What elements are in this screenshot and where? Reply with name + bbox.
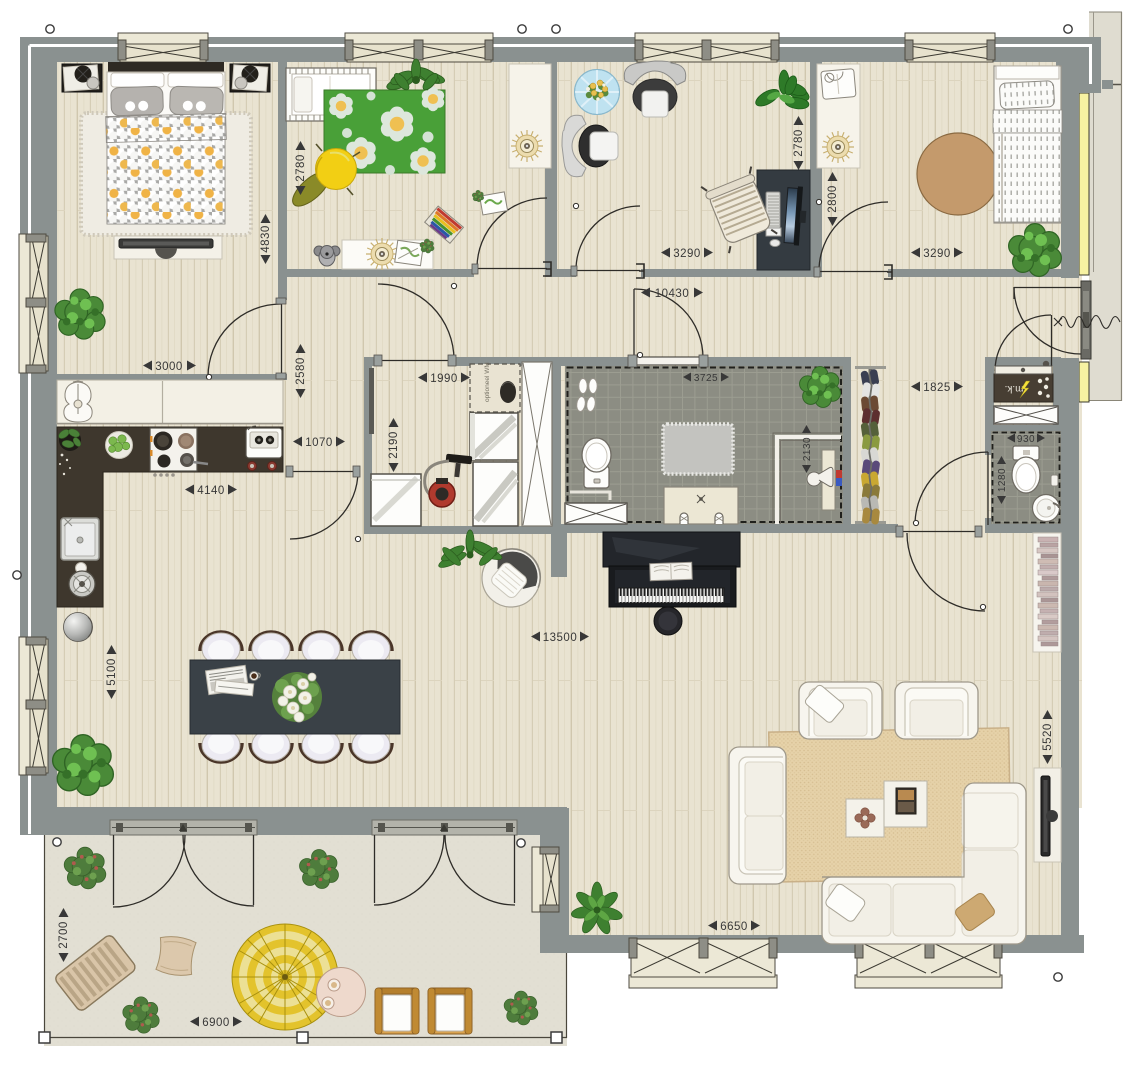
svg-text:m.k.: m.k. — [1005, 383, 1024, 394]
svg-text:2780: 2780 — [793, 129, 805, 157]
svg-text:10430: 10430 — [655, 288, 689, 300]
svg-text:1070: 1070 — [305, 437, 333, 449]
svg-text:2700: 2700 — [58, 921, 70, 949]
svg-text:5520: 5520 — [1042, 723, 1054, 751]
svg-text:2800: 2800 — [827, 185, 839, 213]
svg-text:5100: 5100 — [106, 658, 118, 686]
svg-text:2580: 2580 — [295, 357, 307, 385]
svg-text:4140: 4140 — [197, 485, 225, 497]
svg-text:3290: 3290 — [673, 248, 701, 260]
svg-text:6900: 6900 — [202, 1017, 230, 1029]
svg-text:3000: 3000 — [155, 361, 183, 373]
svg-text:1280: 1280 — [997, 468, 1008, 492]
svg-text:13500: 13500 — [543, 632, 577, 644]
svg-text:4830: 4830 — [260, 225, 272, 253]
svg-text:optioneel WM: optioneel WM — [484, 362, 491, 402]
svg-text:3725: 3725 — [694, 373, 718, 384]
svg-text:1825: 1825 — [923, 382, 951, 394]
svg-text:2780: 2780 — [295, 154, 307, 182]
svg-text:6650: 6650 — [720, 921, 748, 933]
svg-text:1990: 1990 — [430, 373, 458, 385]
svg-text:2130: 2130 — [802, 437, 813, 461]
svg-text:3290: 3290 — [923, 248, 951, 260]
svg-text:930: 930 — [1017, 434, 1035, 445]
svg-text:2190: 2190 — [388, 431, 400, 459]
